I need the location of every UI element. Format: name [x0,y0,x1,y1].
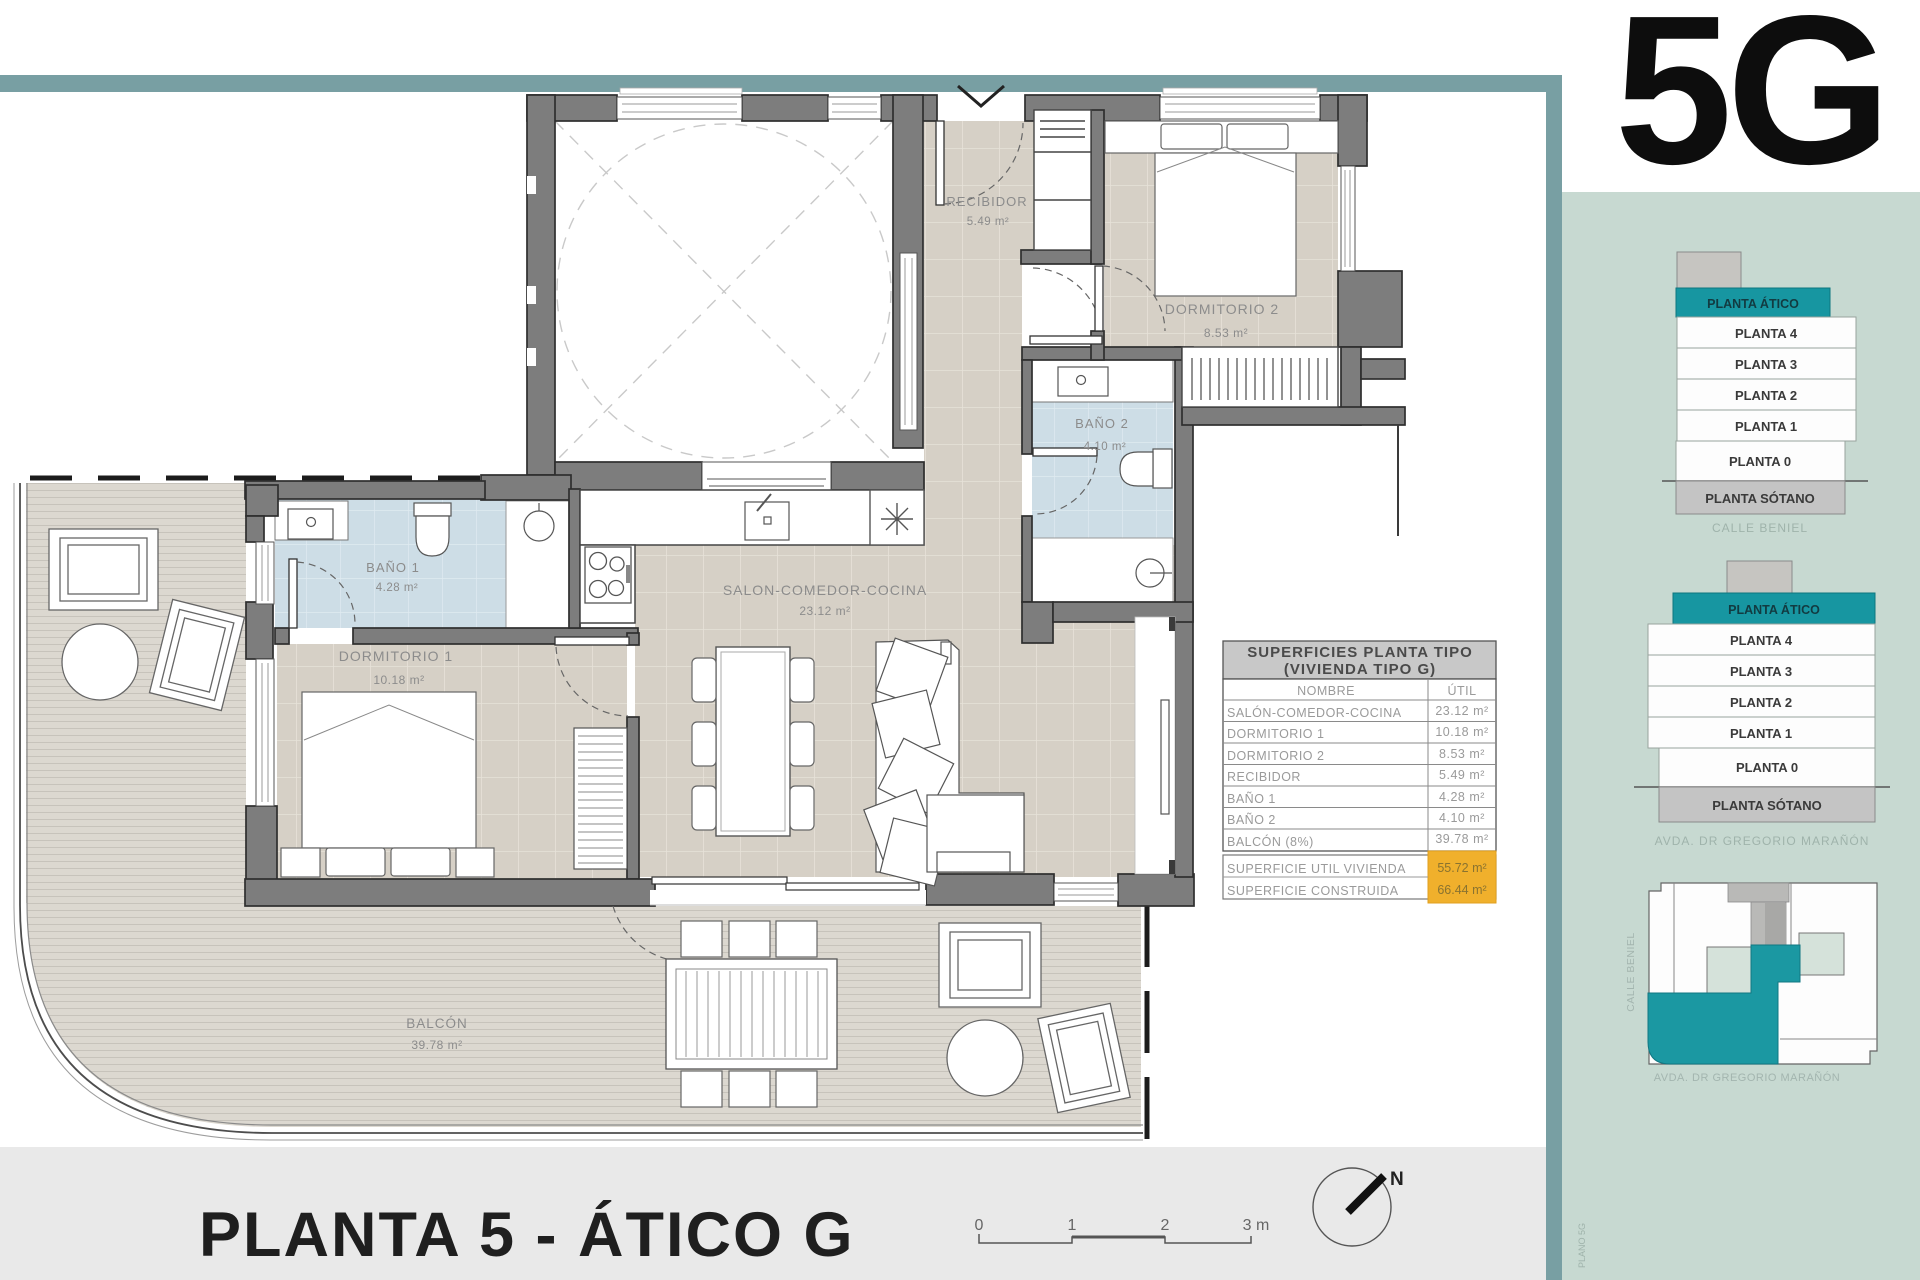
svg-text:23.12 m²: 23.12 m² [799,604,850,618]
svg-text:0: 0 [975,1217,984,1234]
svg-text:SUPERFICIES PLANTA TIPO: SUPERFICIES PLANTA TIPO [1247,644,1473,661]
svg-text:5.49 m²: 5.49 m² [1439,768,1485,782]
svg-text:DORMITORIO 1: DORMITORIO 1 [339,648,453,664]
svg-text:10.18 m²: 10.18 m² [1435,725,1488,739]
svg-text:BAÑO 1: BAÑO 1 [366,560,420,575]
svg-text:PLANTA 4: PLANTA 4 [1730,633,1793,648]
svg-text:PLANTA 1: PLANTA 1 [1735,419,1797,434]
svg-text:CALLE BENIEL: CALLE BENIEL [1625,932,1637,1012]
svg-text:10.18 m²: 10.18 m² [373,673,424,687]
svg-text:4.28 m²: 4.28 m² [1439,790,1485,804]
svg-text:4.10 m²: 4.10 m² [1084,441,1127,453]
svg-text:2: 2 [1161,1217,1170,1234]
svg-text:BALCÓN (8%): BALCÓN (8%) [1227,834,1314,849]
svg-text:DORMITORIO 1: DORMITORIO 1 [1227,727,1324,741]
svg-text:3 m: 3 m [1243,1217,1270,1234]
svg-text:AVDA. DR GREGORIO MARAÑÓN: AVDA. DR GREGORIO MARAÑÓN [1654,1071,1840,1084]
svg-text:5G: 5G [1615,0,1886,208]
svg-text:AVDA. DR GREGORIO MARAÑÓN: AVDA. DR GREGORIO MARAÑÓN [1655,833,1870,848]
svg-text:PLANTA SÓTANO: PLANTA SÓTANO [1705,491,1815,506]
svg-text:PLANTA SÓTANO: PLANTA SÓTANO [1712,798,1822,813]
svg-text:PLANTA 3: PLANTA 3 [1730,664,1792,679]
svg-text:4.10 m²: 4.10 m² [1439,811,1485,825]
svg-text:RECIBIDOR: RECIBIDOR [1227,770,1301,784]
svg-text:DORMITORIO 2: DORMITORIO 2 [1227,749,1324,763]
svg-text:NOMBRE: NOMBRE [1297,684,1355,698]
svg-text:23.12 m²: 23.12 m² [1435,704,1488,718]
svg-text:ÚTIL: ÚTIL [1447,683,1476,698]
svg-text:CALLE BENIEL: CALLE BENIEL [1712,521,1808,535]
svg-text:PLANTA 4: PLANTA 4 [1735,326,1798,341]
svg-text:PLANO 5G: PLANO 5G [1577,1223,1587,1268]
svg-text:(VIVIENDA TIPO G): (VIVIENDA TIPO G) [1284,661,1436,678]
svg-text:RECIBIDOR: RECIBIDOR [946,194,1027,209]
svg-text:PLANTA ÁTICO: PLANTA ÁTICO [1707,296,1799,311]
svg-text:BAÑO 2: BAÑO 2 [1227,813,1276,827]
svg-text:SALÓN-COMEDOR-COCINA: SALÓN-COMEDOR-COCINA [1227,705,1402,720]
svg-text:SUPERFICIE UTIL VIVIENDA: SUPERFICIE UTIL VIVIENDA [1227,862,1406,876]
svg-text:5.49 m²: 5.49 m² [967,216,1010,228]
svg-text:DORMITORIO 2: DORMITORIO 2 [1165,301,1279,317]
svg-text:BAÑO 1: BAÑO 1 [1227,792,1276,806]
svg-text:66.44 m²: 66.44 m² [1437,883,1486,897]
svg-text:PLANTA 2: PLANTA 2 [1730,695,1792,710]
svg-text:PLANTA 2: PLANTA 2 [1735,388,1797,403]
svg-text:SUPERFICIE CONSTRUIDA: SUPERFICIE CONSTRUIDA [1227,884,1399,898]
svg-text:4.28 m²: 4.28 m² [376,582,419,594]
svg-text:PLANTA 1: PLANTA 1 [1730,726,1792,741]
svg-text:SALON-COMEDOR-COCINA: SALON-COMEDOR-COCINA [723,582,927,598]
svg-text:55.72 m²: 55.72 m² [1437,861,1486,875]
svg-text:39.78 m²: 39.78 m² [1435,832,1488,846]
svg-text:BALCÓN: BALCÓN [406,1016,468,1031]
svg-text:PLANTA 3: PLANTA 3 [1735,357,1797,372]
svg-text:BAÑO 2: BAÑO 2 [1075,416,1129,431]
svg-text:PLANTA 0: PLANTA 0 [1729,454,1791,469]
svg-text:8.53 m²: 8.53 m² [1439,747,1485,761]
svg-text:PLANTA 0: PLANTA 0 [1736,760,1798,775]
svg-text:39.78 m²: 39.78 m² [411,1038,462,1052]
svg-text:1: 1 [1068,1217,1077,1234]
svg-text:PLANTA ÁTICO: PLANTA ÁTICO [1728,602,1820,617]
svg-text:PLANTA 5 - ÁTICO G: PLANTA 5 - ÁTICO G [199,1200,854,1270]
svg-text:N: N [1390,1169,1404,1190]
svg-text:8.53 m²: 8.53 m² [1204,326,1248,340]
